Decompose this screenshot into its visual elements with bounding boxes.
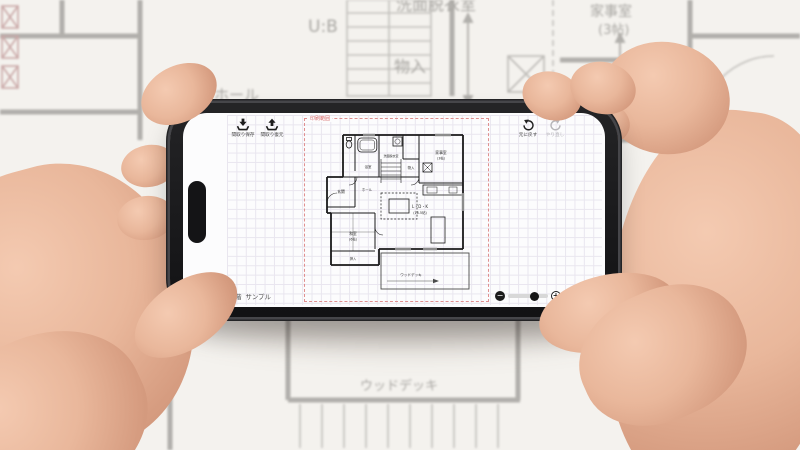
smartphone: 間取り保存 間取り復元 元に戻す やり直し <box>170 103 618 317</box>
zoom-out-button[interactable]: − <box>495 291 505 301</box>
bg-label-ub: U:B <box>308 17 338 37</box>
room-label-washroom: 洗面脱衣室 <box>383 153 398 158</box>
room-label-ldk-size: (16.5帖) <box>413 210 427 215</box>
undo-icon <box>521 118 536 131</box>
camera-island <box>188 181 206 243</box>
room-label-tatami: 和室 <box>349 231 357 236</box>
room-label-utility-size: (3帖) <box>437 156 445 161</box>
undo-label: 元に戻す <box>515 132 541 138</box>
restore-plan-button[interactable]: 間取り復元 <box>259 118 285 138</box>
redo-label: やり直し <box>542 132 568 138</box>
plan-name-label: サンプル <box>245 292 270 301</box>
floorplan-drawing[interactable]: 浴室 洗面脱衣室 物入 家事室 (3帖) 玄関 ホール 和室 (6帖) 押入 L… <box>323 131 483 297</box>
room-label-deck: ウッドデッキ <box>400 272 422 277</box>
bg-label-storage: 物入 <box>394 57 426 76</box>
redo-button[interactable]: やり直し <box>542 118 568 138</box>
room-label-bath: 浴室 <box>365 164 372 169</box>
room-label-utility: 家事室 <box>435 150 447 155</box>
bg-label-hall: ホール <box>214 86 259 104</box>
save-download-icon <box>236 118 250 131</box>
bg-label-utility: 家事室 <box>590 3 632 20</box>
bg-label-deck: ウッドデッキ <box>360 378 438 394</box>
bg-label-utility-size: (3帖) <box>598 23 629 38</box>
room-label-entrance: 玄関 <box>337 189 345 194</box>
room-label-closet: 押入 <box>350 256 357 261</box>
restore-plan-label: 間取り復元 <box>259 132 285 138</box>
room-label-storage: 物入 <box>408 165 415 170</box>
zoom-slider-handle[interactable] <box>530 292 539 301</box>
print-range-label: 印刷範囲 <box>308 116 332 122</box>
save-plan-label: 間取り保存 <box>230 132 256 138</box>
zoom-slider-track[interactable] <box>508 294 548 298</box>
bg-label-washroom: 洗面脱衣室 <box>396 0 476 14</box>
save-plan-button[interactable]: 間取り保存 <box>230 118 256 138</box>
room-label-ldk: L・D・K <box>412 204 428 209</box>
room-label-tatami-size: (6帖) <box>349 237 357 242</box>
print-range-frame: 印刷範囲 <box>304 118 489 302</box>
undo-button[interactable]: 元に戻す <box>515 118 541 138</box>
room-label-hall: ホール <box>362 187 373 192</box>
phone-screen: 間取り保存 間取り復元 元に戻す やり直し <box>183 113 605 307</box>
restore-upload-icon <box>265 118 279 131</box>
